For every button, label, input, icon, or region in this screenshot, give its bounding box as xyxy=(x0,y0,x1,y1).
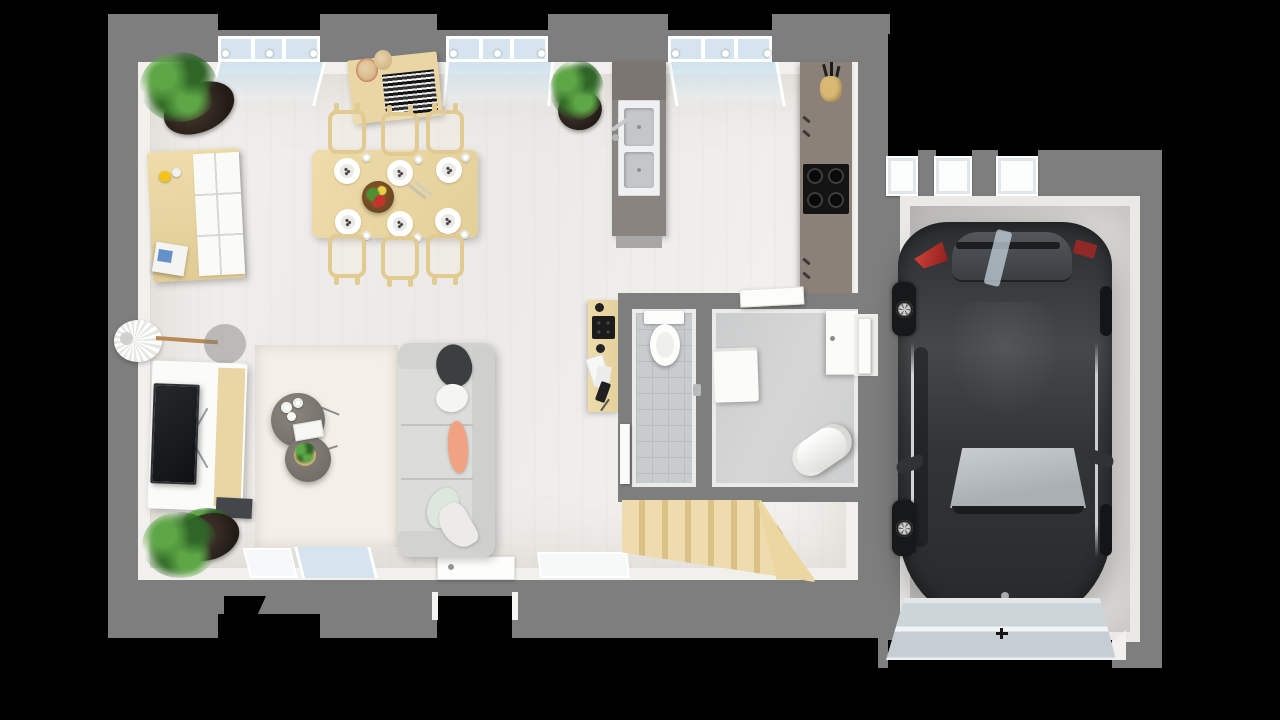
dining-chair xyxy=(426,110,464,154)
car-side-glass-left xyxy=(914,347,928,547)
bottom-wall-pier xyxy=(512,614,888,638)
window-handle xyxy=(450,50,457,57)
window-bottom-frame xyxy=(537,552,630,578)
lemon xyxy=(159,171,171,182)
wc-door-handle xyxy=(693,384,701,396)
dining-chair xyxy=(426,234,464,278)
utensil-pot xyxy=(820,76,842,102)
place-setting-plate xyxy=(334,158,360,184)
shelf-jar xyxy=(374,50,392,70)
decor-ball xyxy=(172,168,181,177)
car-wheel-front-left xyxy=(892,500,916,556)
car-roof-gloss xyxy=(938,302,1072,432)
garage-window xyxy=(996,156,1038,196)
garage-window xyxy=(886,156,918,196)
car-wheel-rear-left xyxy=(892,282,916,336)
door-jamb xyxy=(512,592,518,620)
window-handle xyxy=(722,50,729,57)
place-setting-plate xyxy=(335,209,361,235)
sink-drain xyxy=(637,125,641,129)
vase xyxy=(293,398,303,408)
utility-door-leaf xyxy=(740,286,805,307)
garage-top-pier xyxy=(1038,150,1162,170)
car-windshield xyxy=(950,448,1086,508)
sofa-seat-seam xyxy=(401,478,473,480)
dining-chair xyxy=(328,234,366,278)
television xyxy=(150,383,199,485)
bottom-wall-pier xyxy=(108,614,218,638)
potted-plant-dining-corner xyxy=(140,52,218,122)
front-door-handle xyxy=(448,564,454,570)
desk-knob xyxy=(595,303,604,312)
place-setting-plate xyxy=(436,157,462,183)
kitchen-island-cap xyxy=(612,62,666,100)
window-bottom-glass xyxy=(294,546,378,578)
vase xyxy=(287,412,296,421)
place-setting-plate xyxy=(435,208,461,234)
car-wheel-front-right xyxy=(1100,504,1112,556)
window-top-center xyxy=(446,36,548,62)
sideboard-doors xyxy=(193,152,245,276)
magazine-cover xyxy=(157,249,173,263)
table-plant xyxy=(294,442,316,464)
wheel-rim xyxy=(896,301,913,318)
desk-keyboard xyxy=(592,316,615,339)
window-handle xyxy=(310,50,317,57)
car-rear-window xyxy=(952,232,1072,282)
garage-side-door-leaf xyxy=(858,318,871,374)
cooktop-burner xyxy=(828,168,844,184)
window-glass-projection xyxy=(668,62,786,106)
wheel-rim xyxy=(896,520,913,537)
washing-machine xyxy=(713,347,759,403)
window-handle xyxy=(764,50,771,57)
dining-chair xyxy=(381,112,419,156)
window-bottom-frame xyxy=(243,548,298,578)
dining-chair xyxy=(381,236,419,280)
window-handle xyxy=(266,50,273,57)
cooktop-burner xyxy=(807,192,823,208)
window-top-dining xyxy=(218,36,320,62)
car-wheel-rear-right xyxy=(1100,286,1112,336)
cabinet-handle xyxy=(830,336,835,341)
place-setting-plate xyxy=(387,160,413,186)
window-opening xyxy=(224,596,266,622)
potted-plant-living-corner xyxy=(142,512,218,578)
place-setting-plate xyxy=(387,211,413,237)
doorway-opening xyxy=(438,596,512,622)
sink-drain xyxy=(637,168,641,172)
window-handle xyxy=(494,50,501,57)
island-base xyxy=(616,236,662,248)
floor-lamp-bulb xyxy=(120,332,133,345)
car-cowl-wiper xyxy=(952,506,1084,514)
bottom-wall-pier xyxy=(320,614,437,638)
cup xyxy=(461,153,470,162)
potted-plant-kitchen xyxy=(550,60,604,120)
floorplan-render xyxy=(0,0,1280,720)
window-top-kitchen xyxy=(668,36,772,62)
garage-top-pier xyxy=(972,150,998,170)
dining-chair xyxy=(328,110,366,154)
window-glass-projection xyxy=(442,62,554,106)
floor-lamp-disc xyxy=(204,324,246,364)
desk-knob xyxy=(596,344,605,353)
cup xyxy=(362,153,371,162)
cooktop-burner xyxy=(807,168,823,184)
wc-door-leaf xyxy=(620,424,630,484)
garage-window xyxy=(934,156,972,196)
toilet-tank xyxy=(644,311,684,324)
window-handle xyxy=(222,50,229,57)
tv-cabinet-wood-panel xyxy=(214,368,246,507)
cup xyxy=(414,155,423,164)
toilet-seat xyxy=(656,332,674,358)
fruit-bowl xyxy=(362,181,394,213)
window-handle xyxy=(672,50,679,57)
garage-door-handle xyxy=(1000,628,1003,639)
cooktop-burner xyxy=(828,192,844,208)
faucet-base xyxy=(612,134,619,141)
window-handle xyxy=(538,50,545,57)
sofa-backrest xyxy=(472,347,495,553)
